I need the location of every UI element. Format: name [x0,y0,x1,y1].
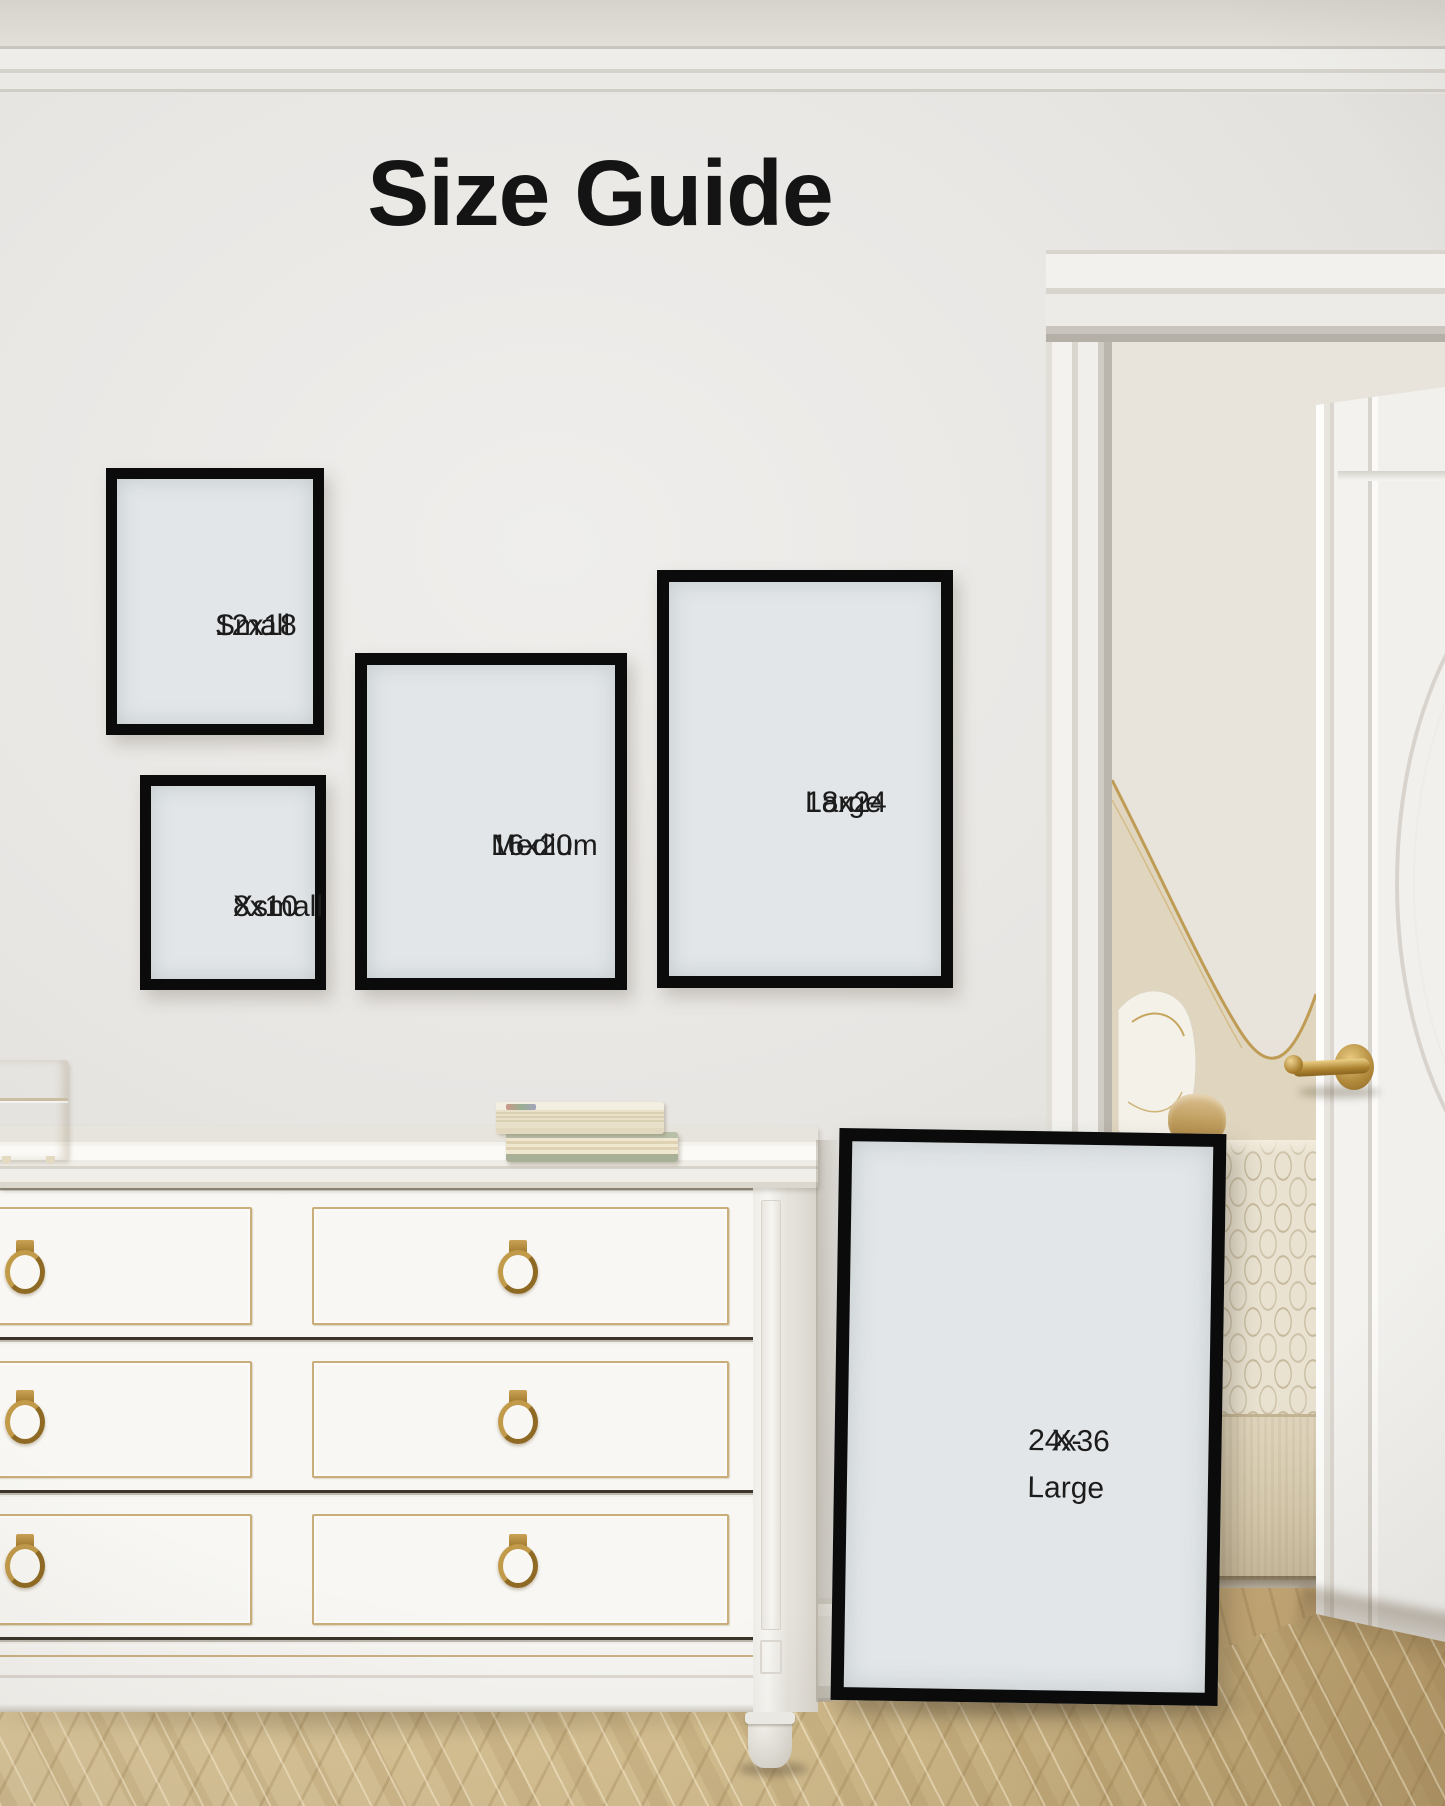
pull-ring [5,1544,45,1588]
size-guide-mockup: Size Guide Small 12x18 Xsmall 8x10 Mediu… [0,0,1445,1806]
bed-skirt [1208,1414,1316,1580]
ring-pull-handle [496,1534,540,1590]
dresser-base [0,1647,790,1712]
decorative-box [0,1060,68,1160]
ring-pull-handle [496,1240,540,1296]
pull-ring [498,1250,538,1294]
crown-molding [0,46,1445,96]
corner-fret [760,1640,782,1674]
frame-large-size: 18x24 [805,779,887,826]
frame-xsmall: Xsmall 8x10 [140,775,326,990]
frame-xsmall-size: 8x10 [233,883,298,930]
frame-xlarge: X-Large 24x36 [831,1128,1227,1706]
drawer-seam [0,1490,753,1500]
dresser-side [790,1188,818,1712]
base-groove [0,1675,790,1678]
book-stack-top [496,1102,664,1134]
dresser [0,1126,822,1806]
open-door [1316,373,1445,1645]
ceiling [0,0,1445,46]
frame-medium-size: 16x20 [491,822,573,869]
frame-medium: Medium 16x20 [355,653,627,990]
ring-pull-handle [3,1390,47,1446]
frame-small: Small 12x18 [106,468,324,735]
base-shadow [0,1704,790,1712]
base-trim-line [0,1655,753,1657]
pull-ring [498,1544,538,1588]
box-foot [46,1156,55,1164]
ring-pull-handle [3,1240,47,1296]
pull-ring [498,1400,538,1444]
page-title: Size Guide [170,140,1030,247]
ring-pull-handle [3,1534,47,1590]
dresser-leg [748,1712,792,1768]
drawer-seam [0,1337,753,1347]
drawer-seam [0,1637,753,1647]
frame-xlarge-size: 24x36 [1028,1417,1110,1465]
corner-flute [761,1200,781,1630]
ring-pull-handle [496,1390,540,1446]
pull-ring [5,1250,45,1294]
dresser-corner-post [753,1188,790,1712]
pull-ring [5,1400,45,1444]
frame-large: Large 18x24 [657,570,953,988]
book-stack-bottom [506,1132,678,1162]
door-handle-shadow [1298,1086,1380,1098]
door-panel-groove [1338,471,1445,481]
frame-small-size: 12x18 [215,602,297,649]
dresser-top [0,1126,818,1188]
book-cover-art [506,1104,536,1110]
door-handle-tip [1284,1055,1303,1074]
box-lid-seam [0,1098,68,1101]
box-foot [2,1156,11,1164]
door-header-molding [1046,250,1445,342]
